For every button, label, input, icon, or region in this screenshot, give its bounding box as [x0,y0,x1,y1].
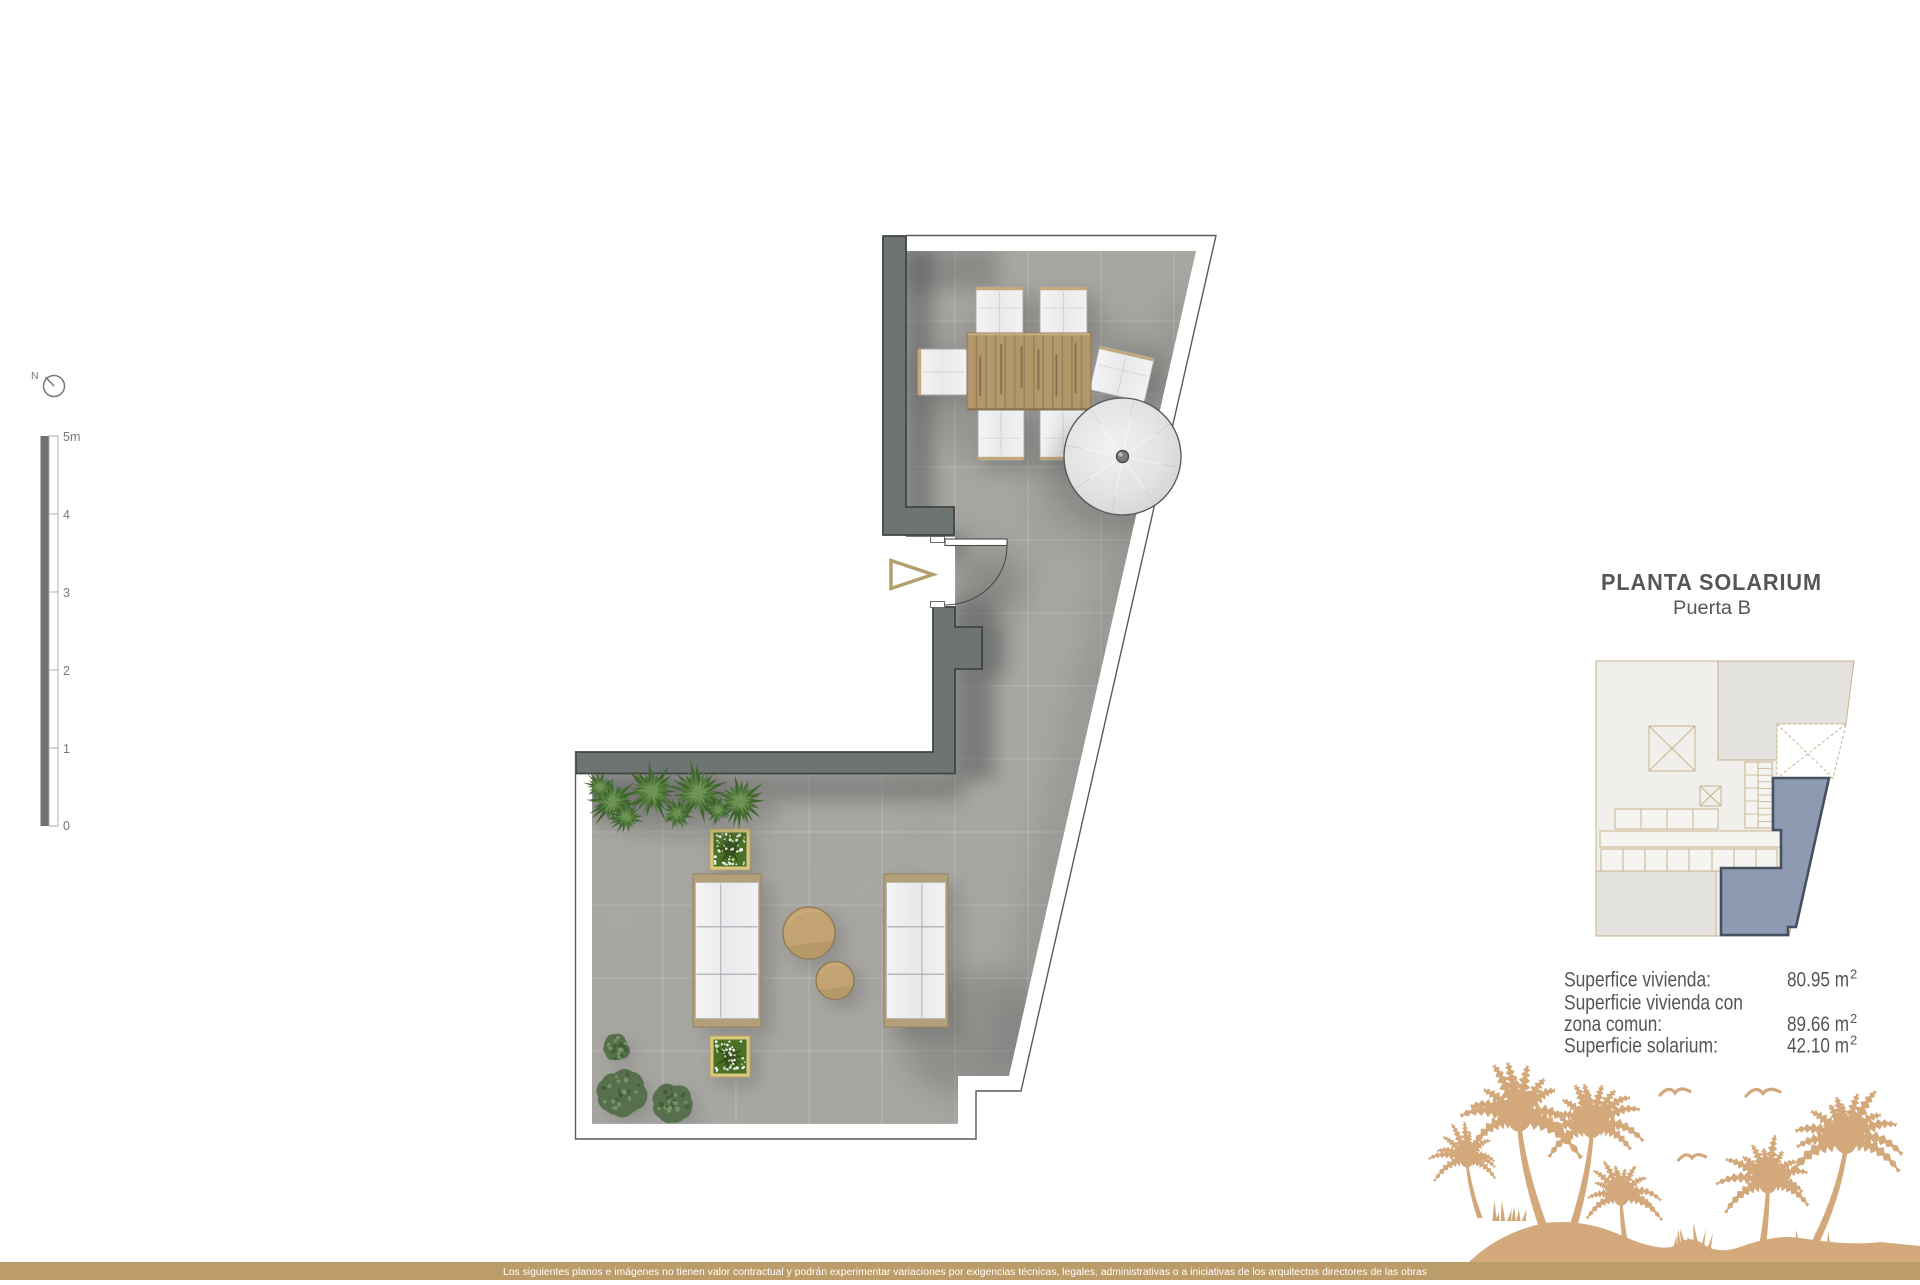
svg-text:42.10 m: 42.10 m [1787,1035,1849,1058]
svg-text:1: 1 [63,742,70,756]
svg-text:5m: 5m [63,430,80,444]
svg-text:4: 4 [63,508,70,522]
svg-text:2: 2 [63,664,70,678]
svg-text:80.95 m: 80.95 m [1787,969,1849,992]
svg-text:89.66 m: 89.66 m [1787,1013,1849,1036]
svg-text:0: 0 [63,819,70,833]
svg-text:2: 2 [1850,967,1857,982]
svg-text:PLANTA SOLARIUM: PLANTA SOLARIUM [1601,569,1822,595]
svg-text:Los siguientes planos e imágen: Los siguientes planos e imágenes no tien… [503,1267,1427,1278]
svg-text:Superfice vivienda:: Superfice vivienda: [1564,969,1711,992]
svg-text:2: 2 [1850,1033,1857,1048]
svg-text:Puerta B: Puerta B [1673,598,1751,619]
svg-text:Superficie solarium:: Superficie solarium: [1564,1035,1718,1058]
svg-text:Superficie vivienda con: Superficie vivienda con [1564,992,1743,1015]
svg-text:zona comun:: zona comun: [1564,1013,1662,1036]
svg-text:2: 2 [1850,1011,1857,1026]
svg-text:N: N [31,370,39,382]
svg-text:3: 3 [63,586,70,600]
